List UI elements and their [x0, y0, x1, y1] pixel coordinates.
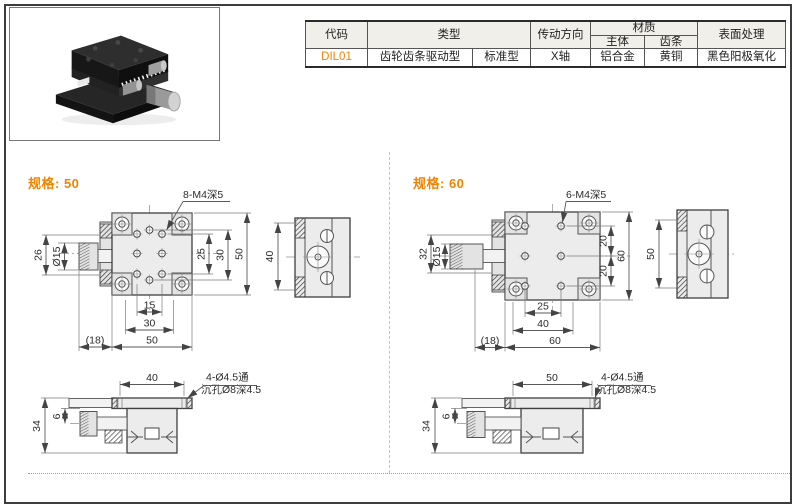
dim-front-height: 34	[421, 420, 433, 432]
dim-knob-offset: 6	[51, 413, 63, 419]
dim-bottom-mid: 40	[537, 318, 549, 330]
dim-side-height: 50	[645, 248, 657, 260]
top-view-60: 6-M4深5 32 Ø15 20 20 60 25 40	[418, 189, 634, 352]
header-code: 代码	[306, 21, 368, 49]
dim-bottom-inner: 15	[144, 300, 156, 312]
dim-bottom-inner: 25	[537, 301, 549, 313]
top-view-50: 8-M4深5 26 Ø15 25 30 50 15 30	[33, 189, 252, 351]
header-type: 类型	[368, 21, 531, 49]
dim-knob-length: 32	[418, 248, 430, 260]
front-callout-line2: 沉孔Ø8深4.5	[201, 383, 261, 396]
dim-right-inner: 20	[598, 235, 610, 247]
product-photo	[10, 8, 219, 140]
cell-code: DIL01	[306, 49, 368, 67]
header-surface: 表面处理	[698, 21, 786, 49]
dim-knob-length: 26	[33, 249, 45, 261]
dim-knob-diameter: Ø15	[51, 246, 63, 266]
front-view-60: 34 6 50 4-Ø4.5通 沉孔Ø8深4.5	[421, 372, 657, 454]
drawing-spec-50: 8-M4深5 26 Ø15 25 30 50 15 30	[0, 150, 390, 480]
cell-material-rack: 黄铜	[645, 49, 698, 67]
drawing-spec-60: 6-M4深5 32 Ø15 20 20 60 25 40	[385, 150, 775, 480]
front-callout-line2: 沉孔Ø8深4.5	[596, 383, 656, 396]
spec-table: 代码 类型 传动方向 材质 表面处理 主体 齿条 DIL01 齿轮齿条驱动型 标…	[305, 20, 786, 68]
dim-right-mid: 30	[215, 249, 227, 261]
product-photo-box	[9, 7, 220, 141]
cell-type-sub: 标准型	[473, 49, 531, 67]
dim-overhang: (18)	[481, 335, 500, 347]
dim-front-height: 34	[31, 420, 43, 432]
bottom-separator	[28, 473, 790, 474]
front-view-50: 34 6 40 4-Ø4.5通 沉孔Ø8深4.5	[31, 372, 261, 454]
section-divider	[389, 152, 390, 473]
header-material-body: 主体	[591, 35, 645, 49]
dim-right-inner: 25	[196, 248, 208, 260]
front-callout-line1: 4-Ø4.5通	[206, 372, 249, 384]
cell-type-main: 齿轮齿条驱动型	[368, 49, 473, 67]
side-view-60: 50	[645, 210, 737, 298]
dim-bottom-outer: 60	[549, 335, 561, 347]
dim-side-height: 40	[264, 251, 276, 263]
front-callout-line1: 4-Ø4.5通	[601, 372, 644, 384]
dim-knob-offset: 6	[441, 413, 453, 419]
header-material-rack: 齿条	[645, 35, 698, 49]
dim-bottom-mid: 30	[144, 318, 156, 330]
dim-right-outer: 50	[234, 248, 246, 260]
header-material: 材质	[591, 21, 698, 35]
header-direction: 传动方向	[531, 21, 591, 49]
dim-overhang: (18)	[86, 335, 105, 347]
hole-callout-label: 6-M4深5	[566, 189, 606, 201]
dim-front-span: 50	[546, 372, 558, 384]
catalog-page: { "accent_color": "#f08300", "table": { …	[0, 0, 800, 480]
cell-surface: 黑色阳极氧化	[698, 49, 786, 67]
hole-callout-label: 8-M4深5	[183, 189, 223, 201]
dim-bottom-outer: 50	[146, 335, 158, 347]
side-view-50: 40	[264, 218, 360, 297]
dim-front-span: 40	[146, 372, 158, 384]
dim-knob-diameter: Ø15	[431, 246, 443, 266]
dim-right-outer: 60	[616, 250, 628, 262]
cell-material-body: 铝合金	[591, 49, 645, 67]
dim-right-inner2: 20	[598, 265, 610, 277]
cell-direction: X轴	[531, 49, 591, 67]
